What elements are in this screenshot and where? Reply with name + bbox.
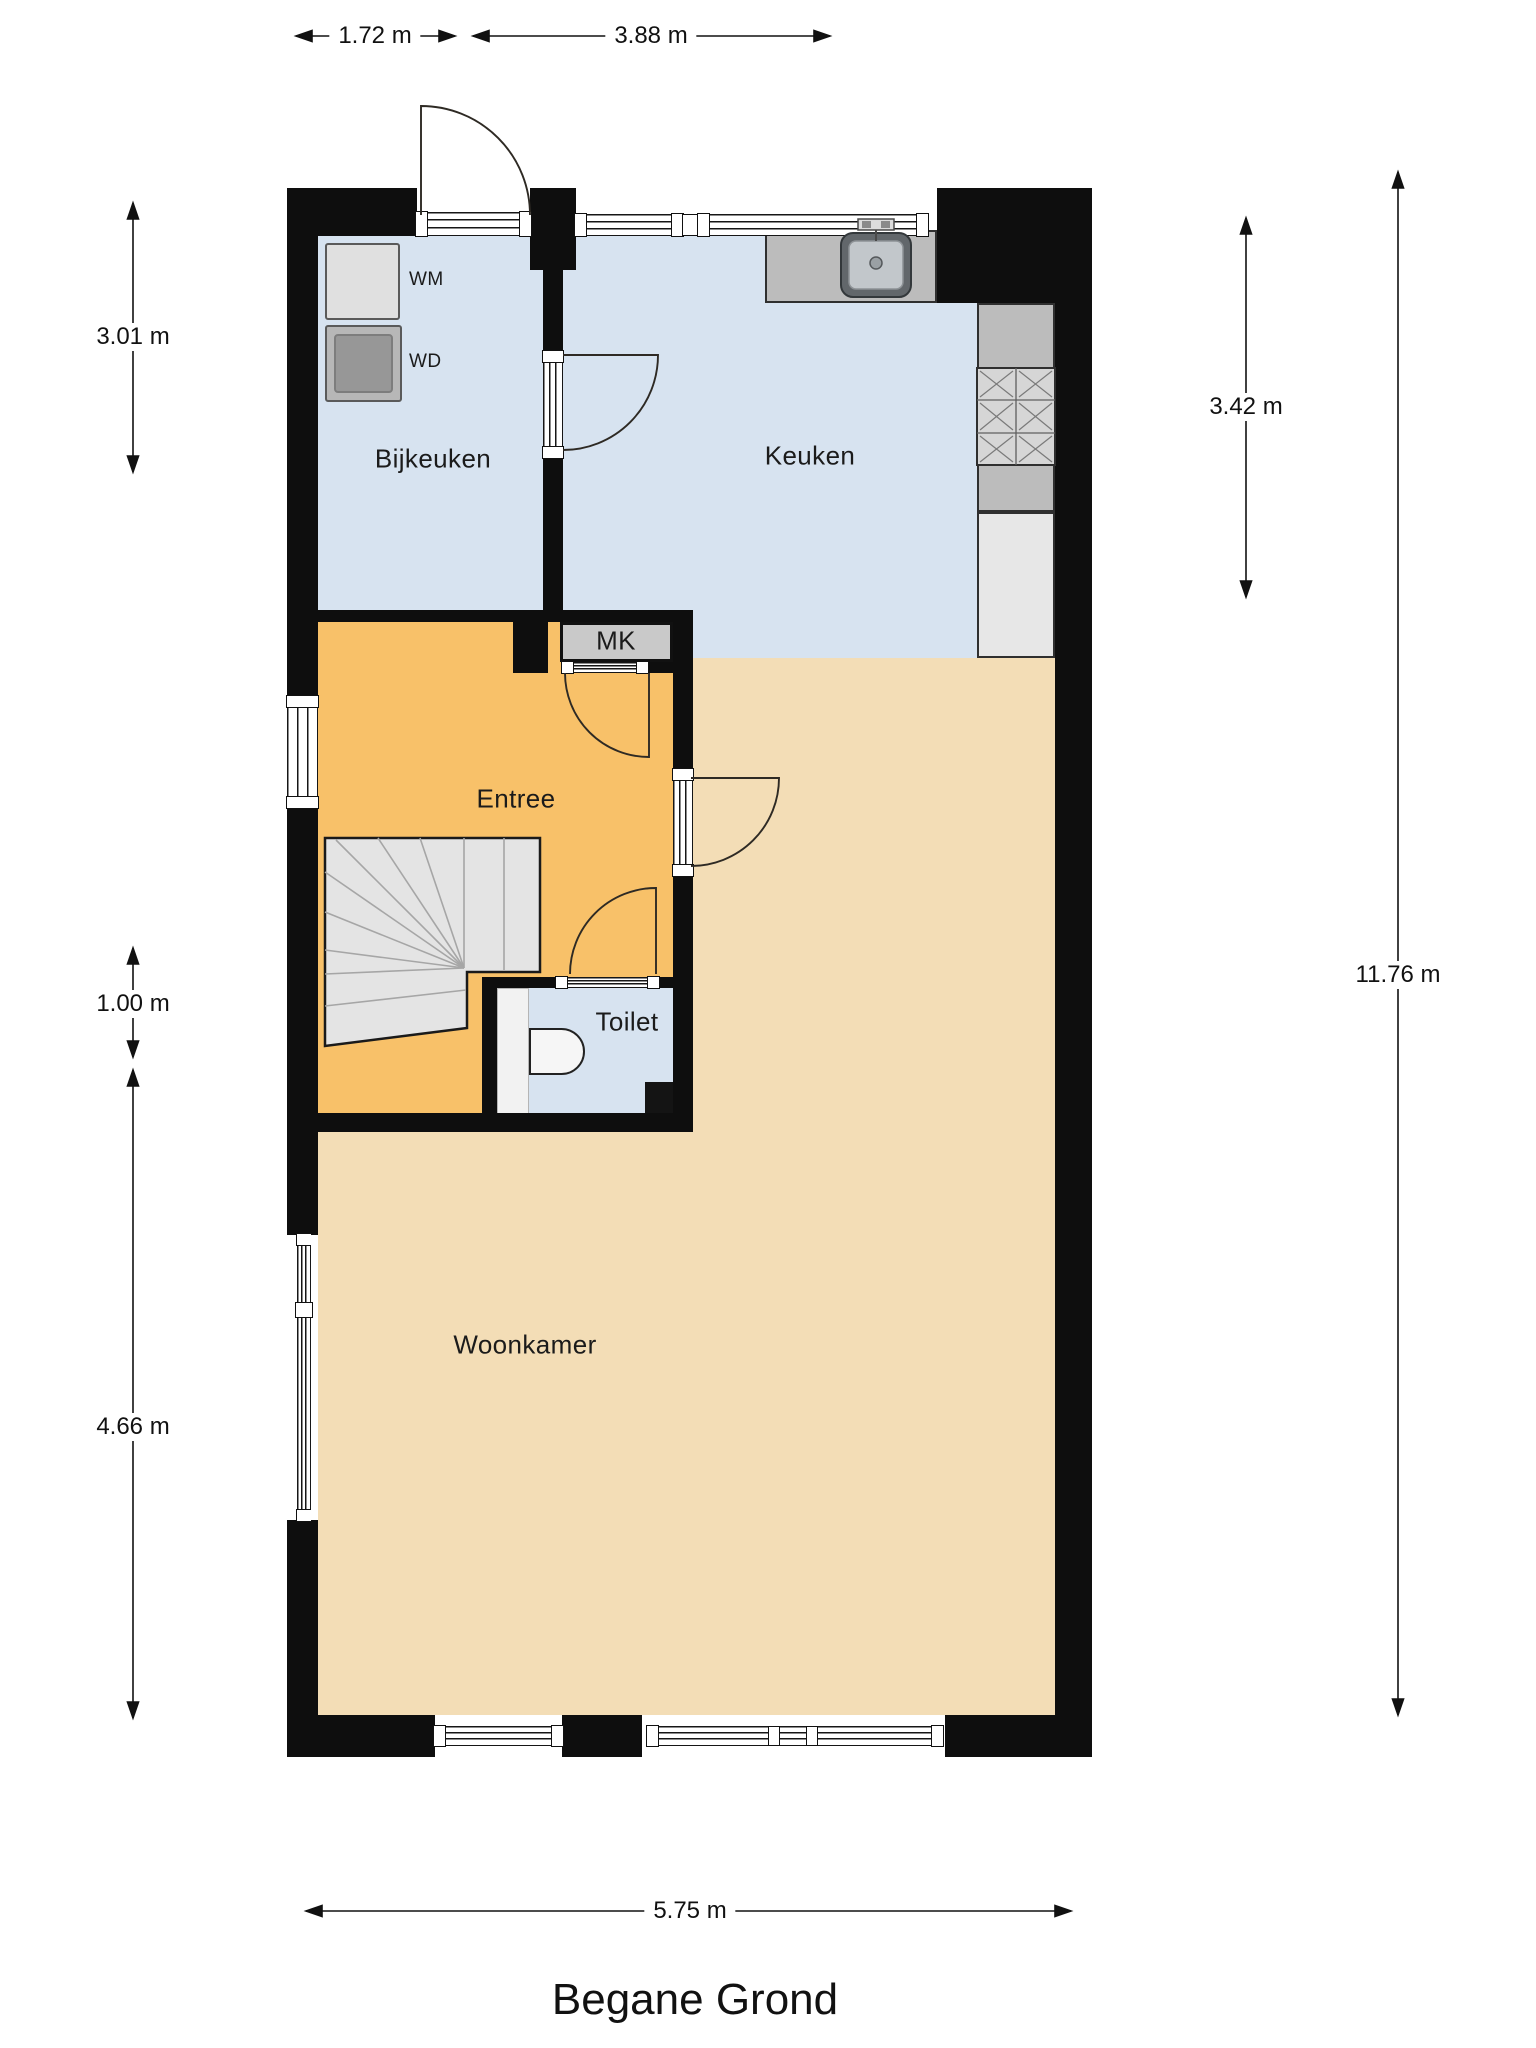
wall-left-upper bbox=[287, 236, 318, 697]
kitchen-counter-top bbox=[765, 230, 937, 303]
wall-under-stairs-toilet bbox=[287, 1113, 693, 1132]
dimension-top-right: 3.88 m bbox=[605, 22, 696, 50]
wall-top-left bbox=[287, 188, 417, 236]
window-left-reveal bbox=[311, 1235, 318, 1520]
toilet-cistern bbox=[497, 988, 529, 1115]
wall-mk-right bbox=[647, 662, 673, 673]
dimension-top-left: 1.72 m bbox=[329, 22, 420, 50]
wall-toilet-top bbox=[482, 977, 557, 988]
floor-title: Begane Grond bbox=[552, 1975, 838, 2025]
door-threshold-entree-left bbox=[287, 697, 318, 807]
dimension-left-lower: 4.66 m bbox=[87, 1413, 178, 1441]
kitchen-cabinet bbox=[977, 512, 1055, 658]
door-threshold-entree-woonkamer bbox=[673, 770, 693, 875]
window-bottom-mullion-1 bbox=[768, 1726, 780, 1746]
dimension-left-upper: 3.01 m bbox=[87, 323, 178, 351]
wall-right bbox=[1055, 303, 1092, 1757]
window-left-mullion bbox=[295, 1302, 313, 1318]
wall-top-right-corner bbox=[937, 188, 1092, 303]
door-threshold-bijkeuken-keuken bbox=[543, 352, 563, 457]
wall-entree-right-lower bbox=[673, 875, 693, 1132]
wall-bijkeuken-keuken-upper bbox=[543, 236, 563, 352]
wall-entree-block bbox=[513, 622, 548, 673]
dryer bbox=[325, 325, 402, 402]
dimension-right-upper: 3.42 m bbox=[1200, 393, 1291, 421]
front-door-threshold-top bbox=[417, 212, 530, 236]
window-bottom-b bbox=[648, 1726, 942, 1746]
room-label-mk: MK bbox=[596, 626, 636, 657]
dimension-right-outer: 11.76 m bbox=[1347, 961, 1450, 989]
dryer-drum bbox=[334, 334, 393, 393]
toilet-bowl-icon bbox=[529, 1028, 585, 1075]
door-threshold-toilet bbox=[557, 977, 658, 988]
wall-bottom-left bbox=[287, 1715, 435, 1757]
window-left bbox=[297, 1235, 311, 1520]
wall-bottom-pier bbox=[562, 1715, 642, 1757]
wall-left-mid bbox=[287, 807, 318, 1235]
dimension-left-middle: 1.00 m bbox=[87, 990, 178, 1018]
wall-entree-top bbox=[300, 610, 693, 622]
window-bottom-a bbox=[435, 1726, 562, 1746]
appliance-label-wd: WD bbox=[409, 351, 441, 373]
window-top-a bbox=[576, 214, 682, 236]
room-label-toilet: Toilet bbox=[595, 1007, 658, 1038]
window-top-b bbox=[699, 214, 927, 236]
room-label-entree: Entree bbox=[476, 784, 555, 815]
toilet-duct bbox=[645, 1082, 675, 1115]
kitchen-counter-right bbox=[977, 303, 1055, 512]
front-door-swing-top bbox=[421, 106, 530, 215]
wall-entree-right-upper bbox=[673, 610, 693, 770]
room-label-bijkeuken: Bijkeuken bbox=[375, 444, 491, 475]
floorplan-begane-grond: Bijkeuken Keuken Entree Toilet Woonkamer… bbox=[0, 0, 1536, 2048]
appliance-label-wm: WM bbox=[409, 269, 444, 291]
wall-toilet-top-right bbox=[658, 977, 673, 988]
wall-bijkeuken-keuken-lower bbox=[543, 457, 563, 610]
wall-toilet-left bbox=[482, 977, 497, 1115]
dimension-bottom: 5.75 m bbox=[644, 1897, 735, 1925]
door-threshold-mk bbox=[563, 662, 647, 673]
window-bottom-mullion-2 bbox=[806, 1726, 818, 1746]
room-label-woonkamer: Woonkamer bbox=[453, 1330, 596, 1361]
room-label-keuken: Keuken bbox=[765, 441, 856, 472]
washing-machine bbox=[325, 243, 400, 320]
